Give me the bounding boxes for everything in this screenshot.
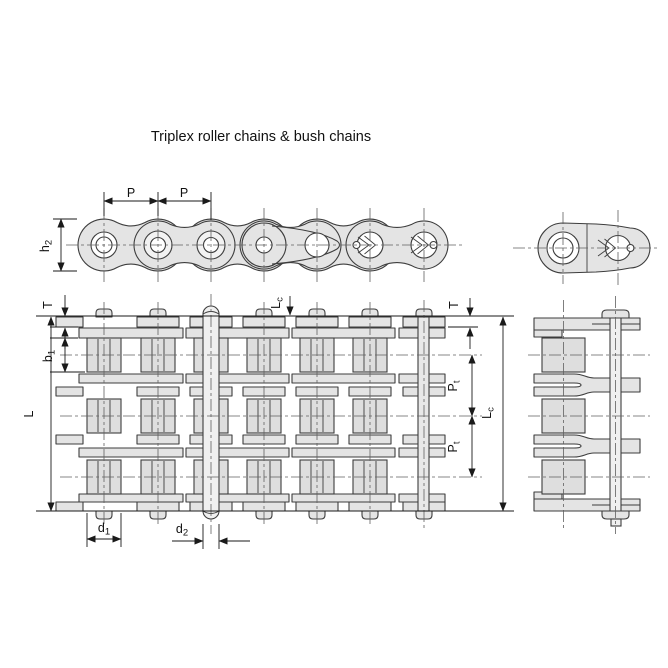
forked-plate	[534, 374, 640, 396]
plate-thickness-label-right: T	[447, 301, 461, 309]
pitch-dimension: P P	[104, 186, 211, 220]
chain-side-view: P P h2	[38, 186, 462, 282]
pitch-label-2: P	[180, 186, 188, 200]
pin-diameter-label: d2	[176, 522, 188, 539]
connecting-pin-length-label-top: Lc	[269, 297, 286, 309]
plate-height-label: h2	[38, 240, 55, 252]
chain-plan-view: L T b1 Lc T Pt Pt Lc	[22, 294, 514, 549]
roller-diameter-label: d1	[98, 521, 110, 538]
connecting-pin-length-label-right: Lc	[480, 407, 497, 419]
triplex-link-end-view	[528, 296, 650, 534]
technical-drawing: Triplex roller chains & bush chains	[0, 0, 668, 668]
connecting-link-side-view	[513, 210, 657, 286]
transverse-pitch-label-2: Pt	[446, 441, 463, 452]
inner-width-label: b1	[41, 350, 58, 362]
plate-thickness-label-left: T	[41, 301, 55, 309]
centerlines	[513, 210, 657, 286]
end-pin-bar	[418, 317, 429, 511]
page-title: Triplex roller chains & bush chains	[151, 129, 371, 145]
forked-plate	[534, 435, 640, 457]
transverse-pitch-label-1: Pt	[446, 380, 463, 391]
pin-length-label: L	[22, 410, 36, 417]
catalog-page: Triplex roller chains & bush chains	[0, 0, 668, 668]
plate-step	[534, 330, 562, 337]
pitch-label-1: P	[127, 186, 135, 200]
